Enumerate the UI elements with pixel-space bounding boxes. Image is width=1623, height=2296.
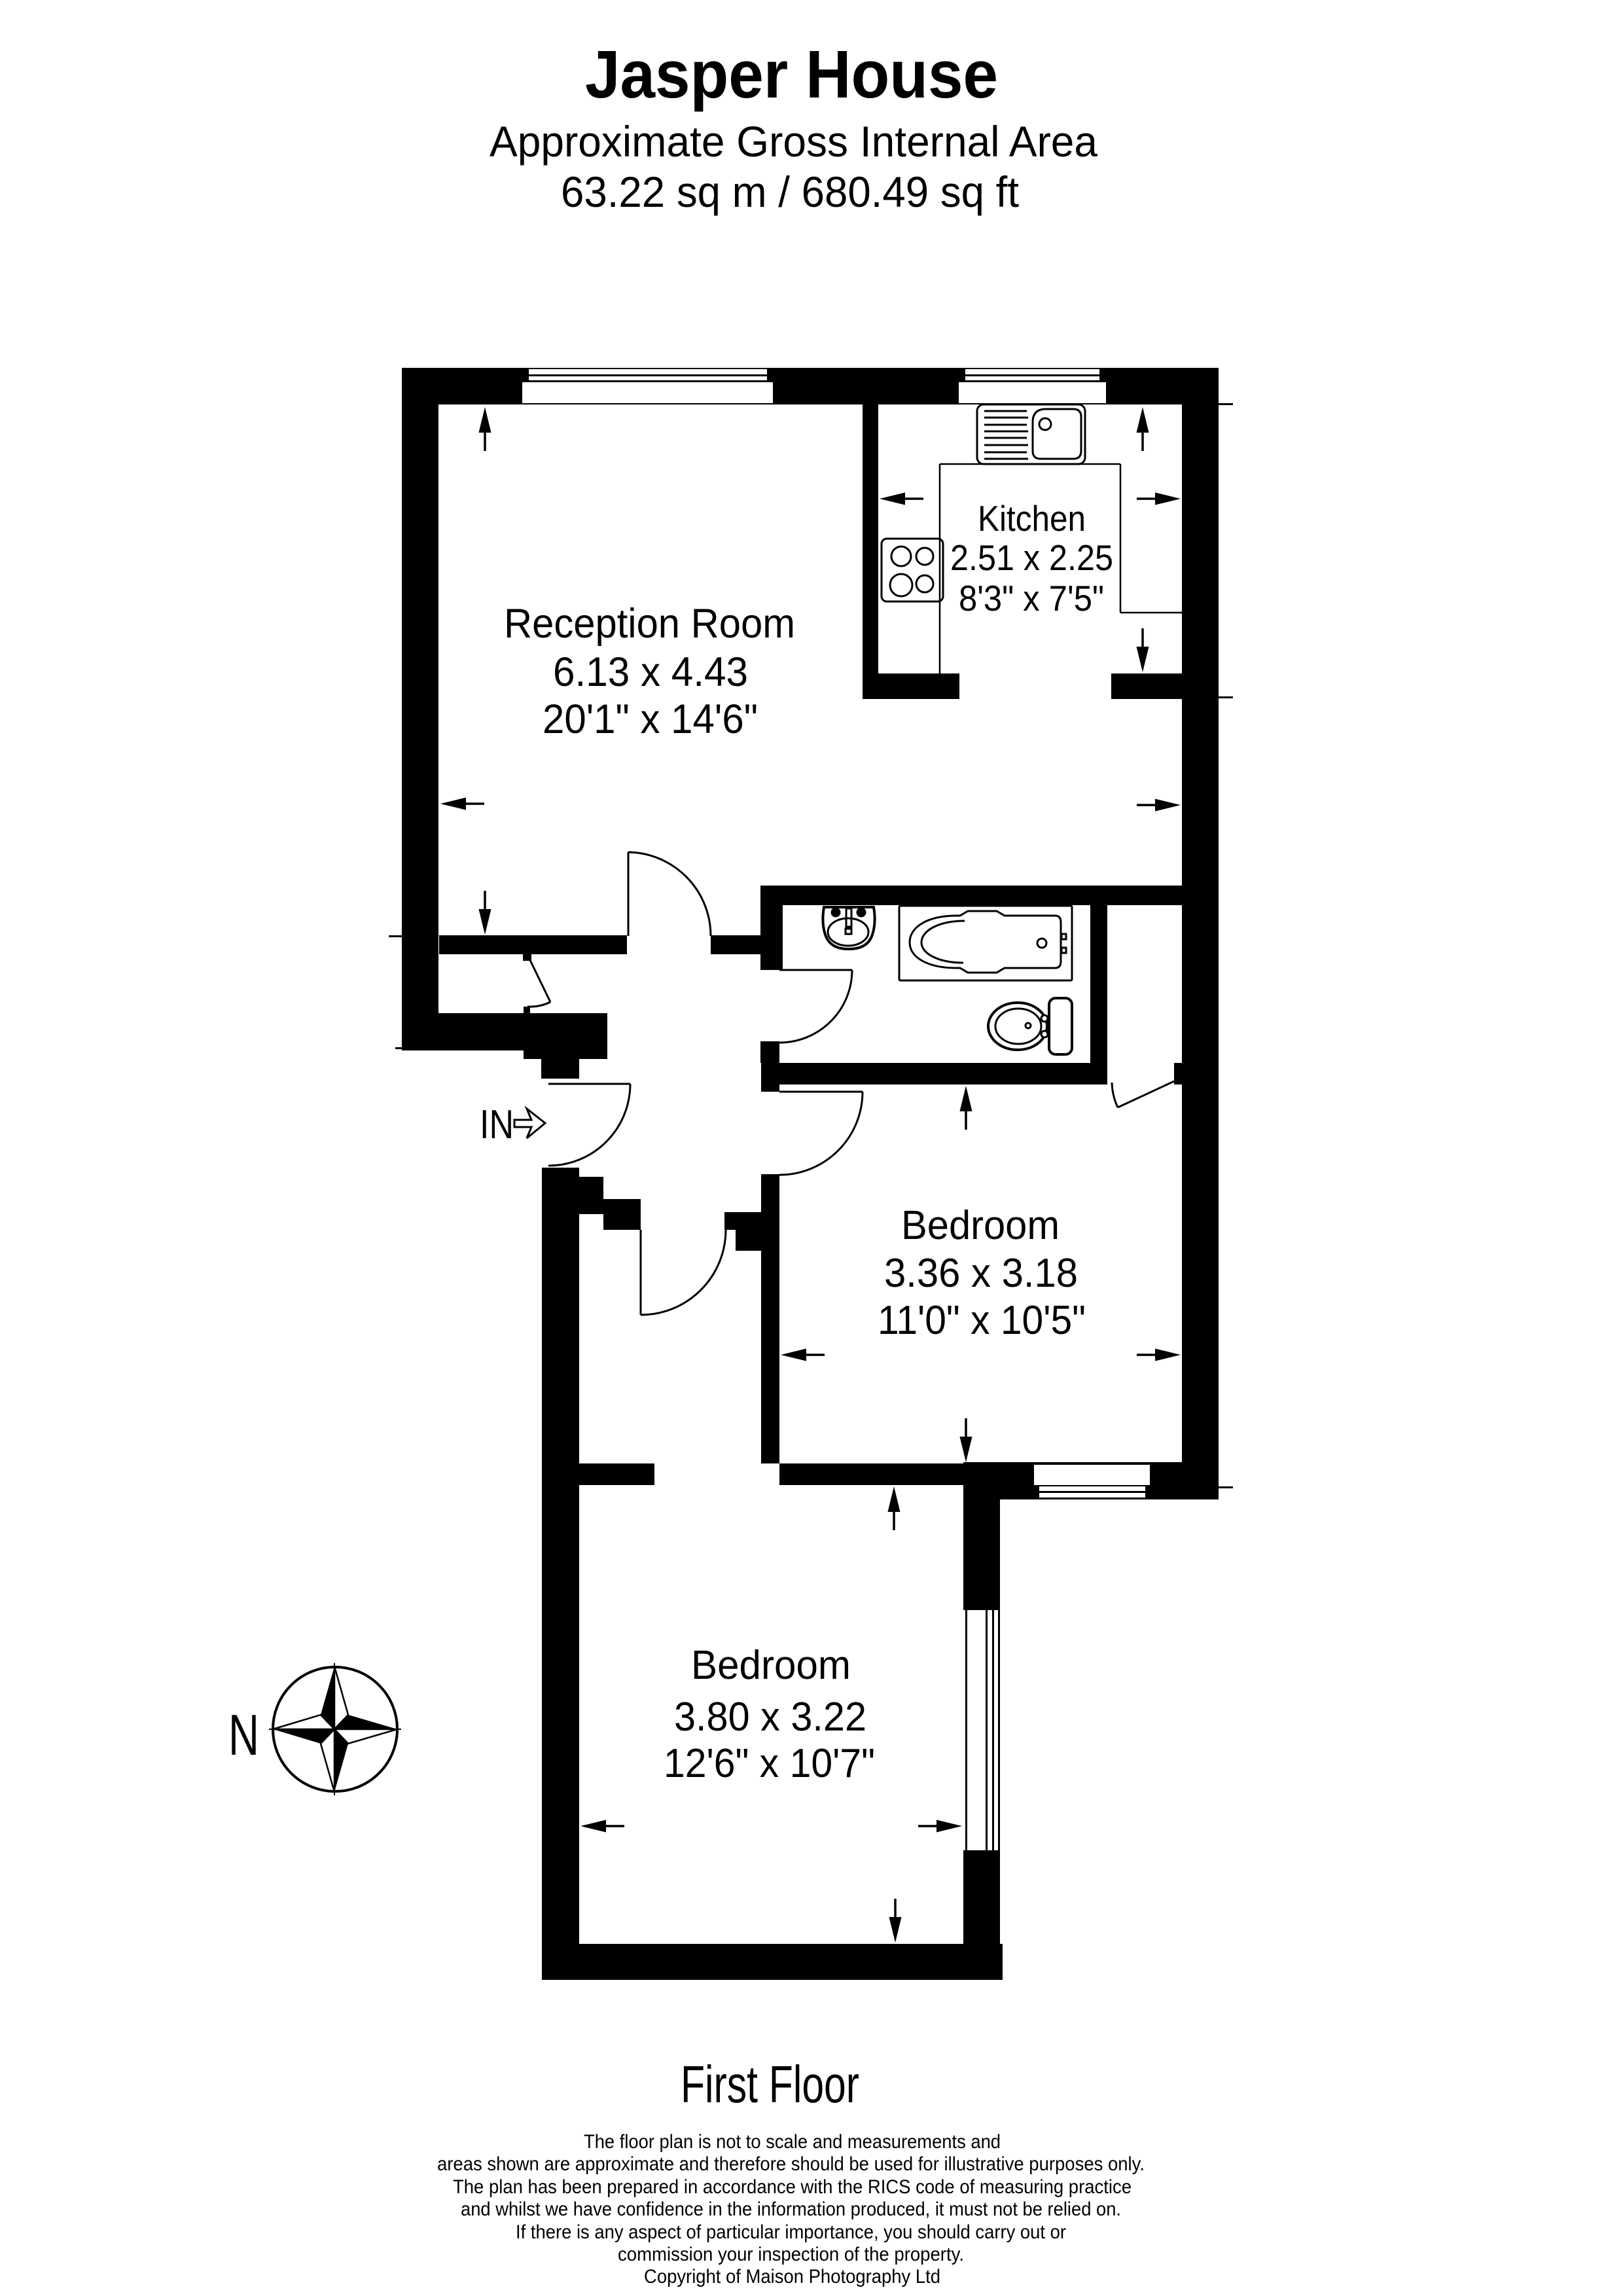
svg-text:and whilst we have confidence: and whilst we have confidence in the inf… <box>461 2198 1121 2220</box>
svg-text:8'3" x 7'5": 8'3" x 7'5" <box>959 578 1104 619</box>
svg-text:12'6" x 10'7": 12'6" x 10'7" <box>664 1741 875 1786</box>
svg-text:N: N <box>228 1702 259 1767</box>
svg-text:11'0" x 10'5": 11'0" x 10'5" <box>878 1298 1086 1343</box>
svg-text:If there is any aspect of part: If there is any aspect of particular imp… <box>516 2221 1066 2243</box>
svg-text:2.51 x 2.25: 2.51 x 2.25 <box>950 537 1113 578</box>
svg-text:Jasper House: Jasper House <box>585 37 998 112</box>
svg-text:Copyright of Maison Photograph: Copyright of Maison Photography Ltd <box>644 2266 940 2287</box>
svg-text:3.80 x 3.22: 3.80 x 3.22 <box>674 1695 866 1740</box>
svg-text:Kitchen: Kitchen <box>978 498 1086 539</box>
svg-text:commission your inspection of: commission your inspection of the proper… <box>618 2244 964 2265</box>
svg-text:20'1" x 14'6": 20'1" x 14'6" <box>543 696 758 742</box>
svg-text:areas shown are approximate an: areas shown are approximate and therefor… <box>437 2153 1145 2175</box>
svg-text:Approximate Gross Internal Are: Approximate Gross Internal Area <box>490 117 1097 166</box>
svg-text:Bedroom: Bedroom <box>901 1203 1060 1248</box>
svg-text:IN: IN <box>480 1102 514 1147</box>
svg-text:6.13 x 4.43: 6.13 x 4.43 <box>553 649 748 695</box>
svg-text:63.22 sq m / 680.49 sq ft: 63.22 sq m / 680.49 sq ft <box>561 168 1019 216</box>
svg-text:First Floor: First Floor <box>681 2055 859 2113</box>
svg-text:Bedroom: Bedroom <box>691 1643 851 1688</box>
svg-text:3.36 x 3.18: 3.36 x 3.18 <box>884 1251 1078 1296</box>
svg-text:Reception Room: Reception Room <box>504 601 795 647</box>
svg-text:The floor plan is not to scale: The floor plan is not to scale and measu… <box>584 2131 1001 2153</box>
svg-text:The plan has been prepared in: The plan has been prepared in accordance… <box>453 2176 1132 2198</box>
